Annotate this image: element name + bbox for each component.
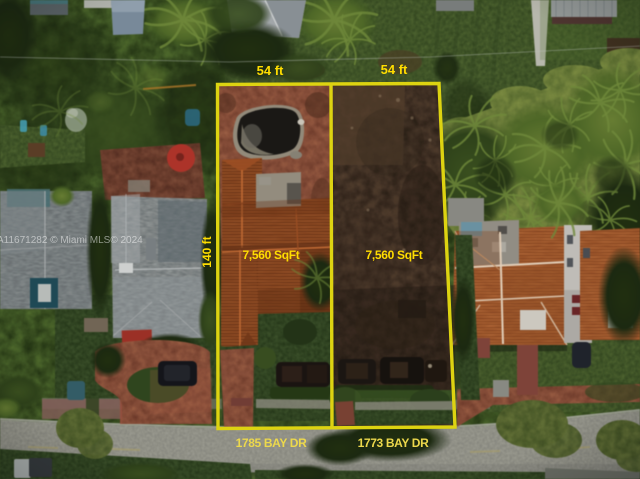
svg-text:A11671282 © Miami MLS© 2024: A11671282 © Miami MLS© 2024 <box>0 235 143 246</box>
svg-text:54 ft: 54 ft <box>381 62 408 77</box>
svg-text:1773 BAY DR: 1773 BAY DR <box>358 436 430 450</box>
svg-text:140 ft: 140 ft <box>200 236 214 267</box>
svg-text:54 ft: 54 ft <box>257 63 284 78</box>
svg-text:7,560 SqFt: 7,560 SqFt <box>242 248 299 262</box>
svg-text:1785 BAY DR: 1785 BAY DR <box>236 436 308 450</box>
svg-text:7,560 SqFt: 7,560 SqFt <box>365 248 422 262</box>
